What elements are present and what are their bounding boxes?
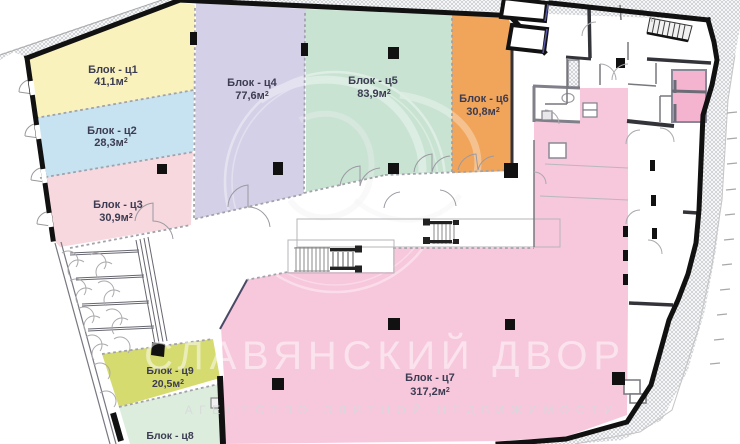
svg-text:30,8м2: 30,8м2 bbox=[466, 106, 500, 118]
svg-text:Блок - ц8: Блок - ц8 bbox=[146, 430, 194, 442]
svg-text:317,2м2: 317,2м2 bbox=[410, 386, 450, 398]
svg-text:28,3м2: 28,3м2 bbox=[94, 137, 128, 149]
svg-text:41,1м2: 41,1м2 bbox=[94, 76, 128, 88]
svg-text:АГЕНТСТВО ЭЛИТНОЙ НЕДВИЖИМОСТИ: АГЕНТСТВО ЭЛИТНОЙ НЕДВИЖИМОСТИ bbox=[185, 402, 620, 417]
svg-text:СЛАВЯНСКИЙ ДВОР: СЛАВЯНСКИЙ ДВОР bbox=[144, 332, 626, 378]
svg-text:Блок - ц5: Блок - ц5 bbox=[348, 75, 398, 87]
svg-text:20,5м2: 20,5м2 bbox=[152, 378, 184, 390]
svg-text:Блок - ц1: Блок - ц1 bbox=[88, 64, 138, 76]
svg-text:Блок - ц2: Блок - ц2 bbox=[87, 125, 137, 137]
svg-text:Блок - ц6: Блок - ц6 bbox=[459, 93, 509, 105]
svg-text:30,9м2: 30,9м2 bbox=[99, 212, 133, 224]
svg-text:Блок - ц3: Блок - ц3 bbox=[93, 199, 143, 211]
svg-text:Блок - ц4: Блок - ц4 bbox=[227, 77, 278, 89]
svg-text:77,6м2: 77,6м2 bbox=[235, 90, 269, 102]
svg-text:83,9м2: 83,9м2 bbox=[357, 88, 391, 100]
